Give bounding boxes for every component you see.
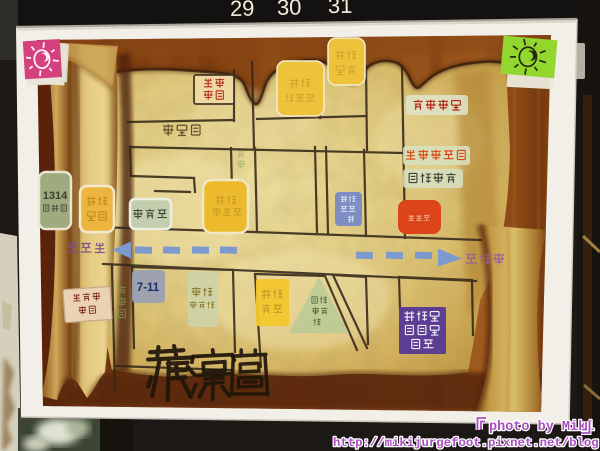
svg-text:31: 31 [328,0,353,18]
svg-text:29: 29 [230,0,255,21]
svg-text:7-11: 7-11 [137,282,160,294]
svg-text:1314: 1314 [43,190,68,202]
svg-text:30: 30 [277,0,302,20]
svg-text:photo by Miki: photo by Miki [489,420,594,435]
svg-text:http://mikijurgefoot.pixnet.ne: http://mikijurgefoot.pixnet.net/blog [333,436,599,450]
